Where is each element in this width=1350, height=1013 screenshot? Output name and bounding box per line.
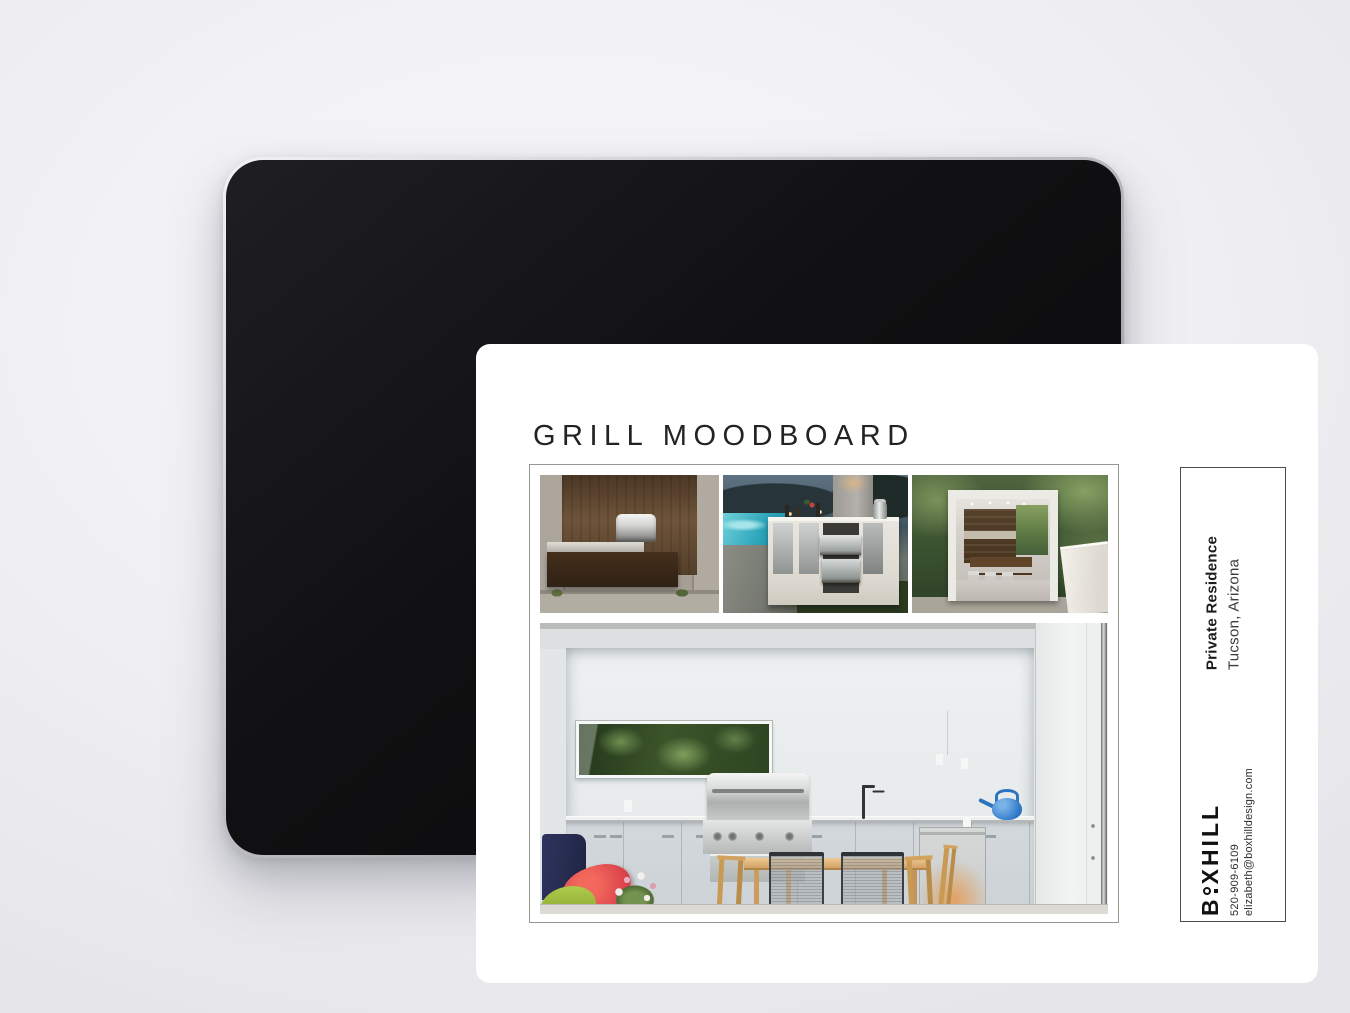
concrete-floor: [956, 580, 1050, 601]
coffee-pot: [873, 502, 887, 519]
moodboard-top-row: [540, 475, 1108, 613]
logo-o-icon: [1203, 887, 1218, 895]
phone-number: 520-909-6109: [1229, 768, 1241, 916]
rust-counter-box: [547, 552, 678, 587]
tablet-device: GRILL MOODBOARD: [223, 157, 1124, 858]
counter-items: [723, 475, 908, 613]
project-info: Private Residence Tucson, Arizona: [1204, 536, 1243, 670]
brand-block: B XHILL 520-909-6109 elizabeth@boxhillde…: [1199, 768, 1255, 916]
project-info-panel: Private Residence Tucson, Arizona B XHIL…: [1180, 467, 1286, 922]
concrete-shelf: [547, 542, 644, 552]
page-title: GRILL MOODBOARD: [533, 420, 915, 453]
logo-letter-b: B: [1199, 896, 1222, 916]
moodboard-image-poolside-island: [723, 475, 908, 613]
faucet: [862, 785, 865, 819]
patio-floor: [540, 904, 1108, 914]
email-address: elizabeth@boxhilldesign.com: [1243, 768, 1255, 916]
grill-hood: [616, 514, 656, 542]
project-name: Private Residence: [1204, 536, 1221, 670]
foreground-wall: [1035, 623, 1108, 914]
watering-can: [992, 798, 1022, 820]
logo-letters-xhill: XHILL: [1199, 803, 1222, 884]
rear-opening: [1016, 505, 1048, 555]
tablet-screen: GRILL MOODBOARD: [476, 344, 1318, 983]
desktop-background: GRILL MOODBOARD: [0, 0, 1350, 1013]
moodboard-image-corten-grill: [540, 475, 719, 613]
project-location: Tucson, Arizona: [1226, 536, 1243, 670]
faucet-spout: [862, 785, 875, 788]
boxhill-logo: B XHILL: [1199, 768, 1222, 916]
steel-post: [1101, 623, 1107, 914]
wood-table: [970, 557, 1032, 567]
moodboard-image-white-kitchen: [540, 623, 1108, 914]
foreground-wall: [1060, 541, 1108, 613]
moodboard-frame: [529, 464, 1119, 923]
wood-cabinet-wall: [964, 509, 1016, 563]
moodboard-image-forest-pavilion: [912, 475, 1108, 613]
